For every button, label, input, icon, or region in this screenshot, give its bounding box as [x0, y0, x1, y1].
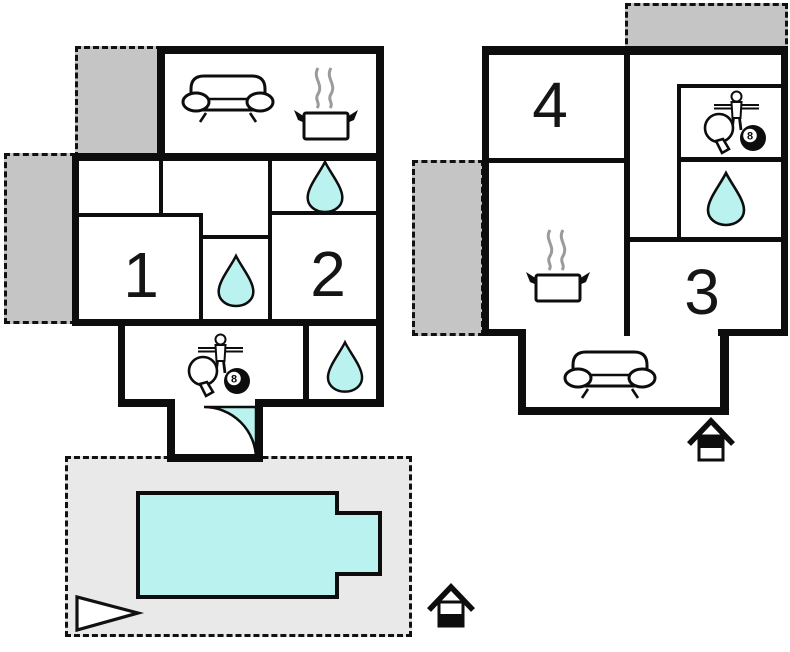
wall — [157, 46, 383, 54]
wall — [157, 46, 165, 161]
wall — [482, 46, 788, 55]
game-room-icon: 8 — [186, 330, 256, 400]
floor-plan: 1 2 3 4 — [0, 0, 790, 652]
wall — [118, 319, 125, 407]
wall — [677, 157, 788, 162]
foosball-player-head — [216, 335, 226, 345]
wall — [518, 407, 729, 415]
pool-shape — [134, 489, 384, 601]
house-logo-icon — [685, 416, 737, 462]
wall — [624, 237, 788, 242]
room-label-3: 3 — [667, 261, 737, 323]
cooking-pot-icon — [526, 228, 590, 304]
door-swing-icon — [202, 406, 256, 460]
eight-ball-label: 8 — [231, 374, 237, 386]
wall — [199, 213, 203, 323]
wall — [72, 153, 79, 326]
wall — [624, 55, 630, 336]
wall — [72, 153, 383, 161]
wall — [482, 46, 489, 336]
wall — [781, 46, 788, 336]
table-tennis-paddle — [189, 357, 217, 385]
wall — [255, 399, 383, 407]
eight-ball-label: 8 — [747, 131, 753, 143]
water-drop-icon — [306, 161, 344, 213]
sofa-icon — [182, 68, 274, 124]
foosball-player-body — [216, 345, 226, 361]
room-label-4: 4 — [515, 74, 585, 136]
annex-left-building-top — [75, 46, 162, 158]
wall — [268, 159, 272, 323]
wall — [199, 235, 272, 239]
table-tennis-paddle — [705, 114, 733, 142]
room-label-2: 2 — [293, 243, 363, 305]
room-label-1: 1 — [106, 244, 176, 306]
direction-triangle-icon — [74, 594, 144, 634]
wall — [376, 46, 384, 407]
pool-water — [138, 493, 380, 597]
foosball-player-body — [732, 102, 742, 118]
sofa-icon — [564, 344, 656, 400]
wall — [518, 329, 526, 415]
wall — [159, 159, 163, 217]
wall — [167, 399, 175, 462]
game-room-icon: 8 — [702, 87, 772, 157]
water-drop-icon — [707, 172, 745, 226]
wall — [677, 84, 681, 242]
cooking-pot-icon — [294, 66, 358, 142]
wall — [720, 329, 729, 415]
foosball-player-head — [732, 92, 742, 102]
wall — [255, 399, 263, 462]
wall — [76, 213, 203, 217]
house-logo-icon — [425, 582, 477, 628]
water-drop-icon — [327, 339, 363, 395]
wall — [482, 158, 630, 163]
annex-left-building-side — [4, 153, 76, 324]
wall — [167, 454, 263, 462]
water-drop-icon — [217, 255, 255, 307]
wall — [303, 322, 309, 403]
annex-right-building-side — [412, 160, 484, 336]
